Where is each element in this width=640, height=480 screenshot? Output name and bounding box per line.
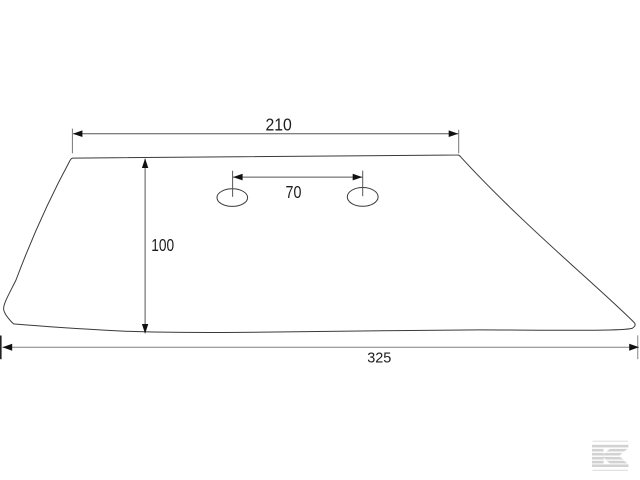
svg-text:70: 70 (286, 182, 302, 202)
svg-text:100: 100 (151, 235, 174, 255)
svg-text:210: 210 (265, 115, 291, 135)
svg-text:325: 325 (367, 351, 391, 367)
